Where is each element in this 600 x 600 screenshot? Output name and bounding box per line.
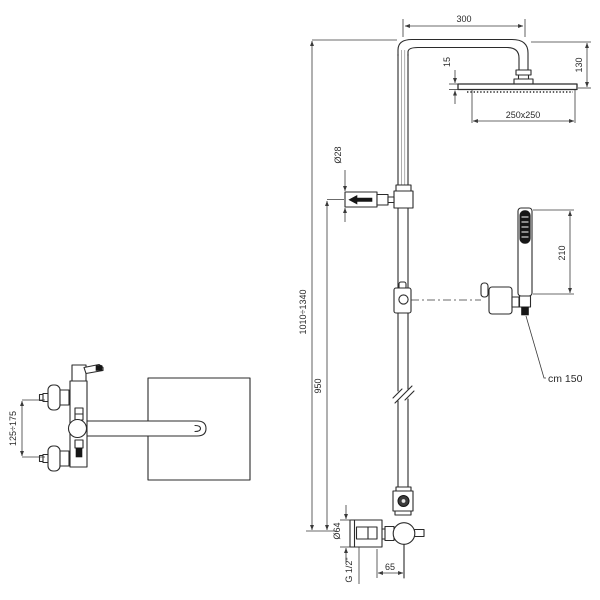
riser-tee-joint xyxy=(394,191,413,208)
spout-junction xyxy=(69,420,87,438)
dim-escutcheon-diameter-label: Ø64 xyxy=(332,522,342,539)
shower-head-connector xyxy=(514,70,533,84)
riser-pipe-lower xyxy=(393,313,414,487)
lower-connector xyxy=(393,487,413,515)
inlet-union-top xyxy=(40,385,70,410)
thread-label: G 1/2" xyxy=(344,557,354,582)
dim-head-thickness: 15 xyxy=(442,57,460,104)
dim-wall-offset-label: 65 xyxy=(385,562,395,572)
dim-total-height: 1010÷1340 xyxy=(298,41,336,531)
pipe-break-symbol xyxy=(393,386,414,403)
dim-handshower-length: 210 xyxy=(533,210,574,294)
riser-flange xyxy=(396,185,411,191)
wall-union-arm xyxy=(345,192,394,207)
connector-screw-center xyxy=(402,499,406,503)
dim-inlet-spacing-label: 125÷175 xyxy=(8,411,18,446)
hose-callout: cm 150 xyxy=(526,316,583,385)
dim-head-drop-label: 130 xyxy=(574,57,584,72)
dim-head-size-label: 250x250 xyxy=(506,110,541,120)
valve-right-stub xyxy=(415,530,425,537)
slider-knob xyxy=(399,295,408,304)
dim-lower-section: 950 xyxy=(313,200,344,531)
diverter-pull-knob xyxy=(76,448,82,457)
hose-length-label: cm 150 xyxy=(548,373,583,385)
shower-system-drawing: 300 130 15 250x250 xyxy=(0,0,600,600)
riser-pipe-middle xyxy=(398,208,408,288)
hand-shower xyxy=(518,208,532,315)
shower-arm xyxy=(398,40,528,71)
valve-wall-escutcheon xyxy=(350,520,382,547)
dim-head-size: 250x250 xyxy=(472,90,575,123)
dim-arm-reach-label: 300 xyxy=(456,14,471,24)
hand-shower-holder xyxy=(481,283,519,314)
mixer-lever-tip xyxy=(96,366,102,371)
riser-pipe-upper xyxy=(398,50,408,185)
dim-inlet-spacing: 125÷175 xyxy=(8,400,45,457)
dim-total-height-label: 1010÷1340 xyxy=(298,290,308,335)
holder-pin xyxy=(481,283,488,297)
inlet-union-bottom xyxy=(40,446,70,471)
dim-head-drop: 130 xyxy=(531,42,591,88)
dim-lower-section-label: 950 xyxy=(313,378,323,393)
dim-handshower-length-label: 210 xyxy=(557,245,567,260)
dim-riser-diameter-label: Ø28 xyxy=(333,146,343,163)
mixer-spout xyxy=(80,421,206,436)
dim-escutcheon-diameter: Ø64 xyxy=(332,505,351,562)
dim-head-thickness-label: 15 xyxy=(442,57,452,67)
mixer-body xyxy=(69,365,104,468)
rain-shower-head xyxy=(458,84,577,92)
dim-riser-diameter: Ø28 xyxy=(333,146,345,222)
hose-outlet xyxy=(522,307,529,315)
technical-drawing-canvas: 300 130 15 250x250 xyxy=(0,0,600,600)
dim-arm-reach: 300 xyxy=(403,14,525,37)
dim-wall-offset: 65 xyxy=(377,549,403,578)
